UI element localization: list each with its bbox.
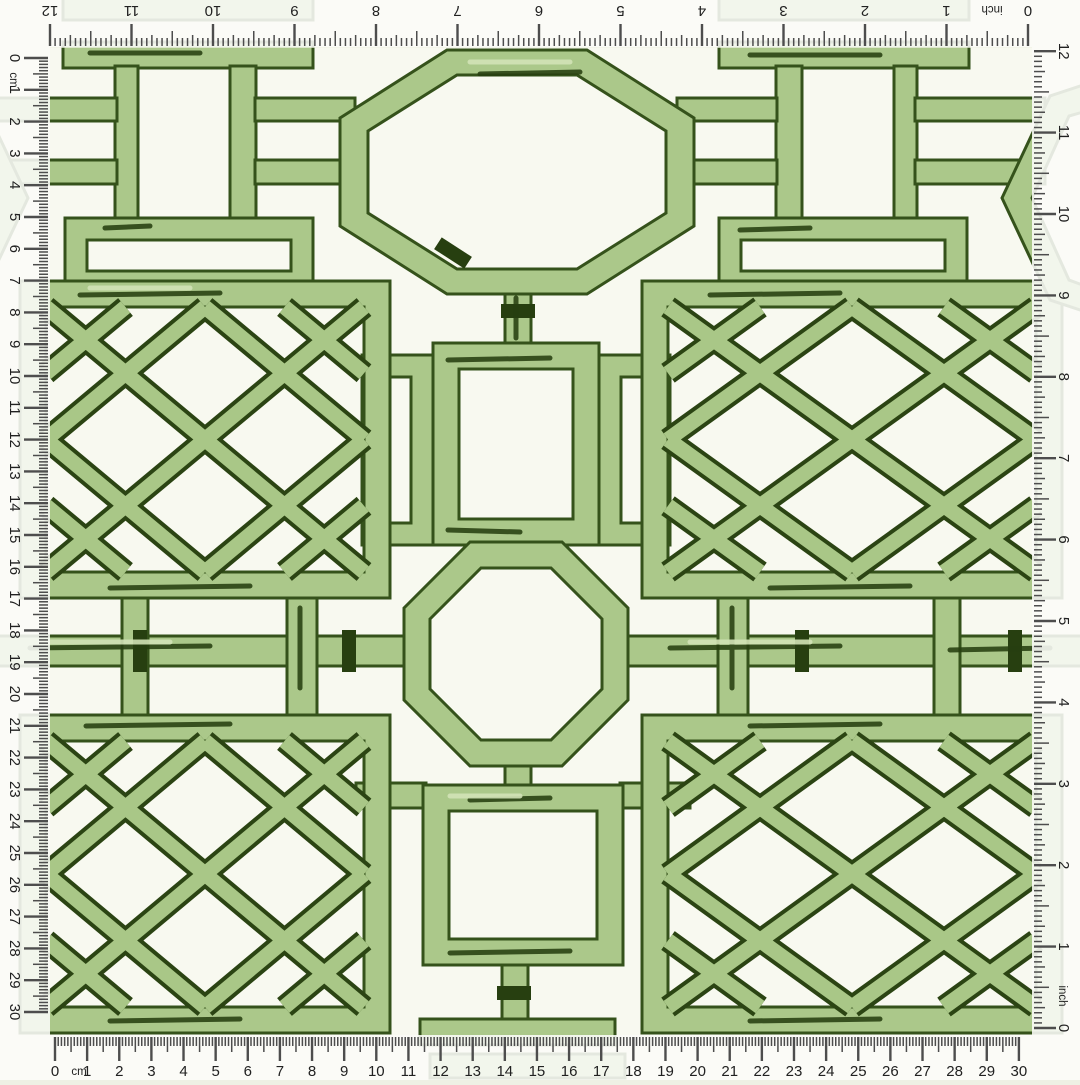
ruler-label-left-28: 28 [6, 940, 23, 957]
ruler-label-left-0: 0 [6, 54, 23, 62]
ruler-label-right-4: 4 [1055, 698, 1072, 706]
ruler-label-left-20: 20 [6, 686, 23, 703]
ruler-unit-bottom: cm [71, 1066, 86, 1078]
ruler-label-left-6: 6 [6, 245, 23, 253]
ruler-label-left-3: 3 [6, 149, 23, 157]
ruler-label-left-12: 12 [6, 431, 23, 448]
ruler-label-right-6: 6 [1055, 535, 1072, 543]
ruler-label-right-7: 7 [1055, 454, 1072, 462]
ruler-label-left-15: 15 [6, 527, 23, 544]
ruler-label-bottom-14: 14 [496, 1063, 513, 1080]
ruler-label-left-23: 23 [6, 781, 23, 798]
ruler-label-bottom-9: 9 [340, 1063, 348, 1080]
ruler-label-right-0: 0 [1055, 1024, 1072, 1032]
ruler-label-bottom-26: 26 [882, 1063, 899, 1080]
ruler-label-right-2: 2 [1055, 861, 1072, 869]
ruler-label-left-30: 30 [6, 1004, 23, 1021]
ruler-label-right-12: 12 [1055, 43, 1072, 60]
ruler-label-left-10: 10 [6, 368, 23, 385]
ruler-label-left-25: 25 [6, 845, 23, 862]
ruler-label-right-1: 1 [1055, 942, 1072, 950]
ruler-label-left-22: 22 [6, 749, 23, 766]
ruler-label-right-5: 5 [1055, 617, 1072, 625]
ruler-label-top-10: 10 [205, 2, 222, 19]
ruler-label-right-8: 8 [1055, 373, 1072, 381]
ruler-label-left-19: 19 [6, 654, 23, 671]
ruler-label-bottom-11: 11 [401, 1063, 417, 1080]
ruler-label-left-7: 7 [6, 276, 23, 284]
ruler-label-bottom-15: 15 [529, 1063, 546, 1080]
ruler-label-bottom-17: 17 [593, 1063, 610, 1080]
ruler-label-top-8: 8 [372, 2, 380, 19]
ruler-label-left-24: 24 [6, 813, 23, 830]
ruler-label-left-5: 5 [6, 213, 23, 221]
ruler-label-left-16: 16 [6, 558, 23, 575]
ruler-label-bottom-3: 3 [147, 1063, 155, 1080]
ruler-label-top-6: 6 [535, 2, 543, 19]
ruler-label-left-27: 27 [6, 908, 23, 925]
ruler-label-top-4: 4 [698, 2, 706, 19]
ruler-label-bottom-12: 12 [432, 1063, 449, 1080]
ruler-label-bottom-0: 0 [51, 1063, 59, 1080]
ruler-label-bottom-5: 5 [211, 1063, 219, 1080]
ruler-label-right-3: 3 [1055, 780, 1072, 788]
ruler-label-left-4: 4 [6, 181, 23, 189]
ruler-label-left-14: 14 [6, 495, 23, 512]
ruler-label-top-5: 5 [616, 2, 624, 19]
ruler-label-bottom-23: 23 [786, 1063, 803, 1080]
ruler-unit-left: cm [7, 72, 19, 87]
ruler-label-left-18: 18 [6, 622, 23, 639]
ruler-label-top-2: 2 [861, 2, 869, 19]
ruler-label-right-9: 9 [1055, 291, 1072, 299]
ruler-label-top-12: 12 [42, 2, 59, 19]
ruler-label-right-11: 11 [1055, 125, 1072, 141]
ruler-label-bottom-7: 7 [276, 1063, 284, 1080]
ruler-label-left-29: 29 [6, 972, 23, 989]
ruler-label-bottom-29: 29 [978, 1063, 995, 1080]
ruler-label-bottom-22: 22 [754, 1063, 771, 1080]
ruler-label-bottom-18: 18 [625, 1063, 642, 1080]
ruler-label-bottom-19: 19 [657, 1063, 674, 1080]
ruler-label-bottom-27: 27 [914, 1063, 931, 1080]
ruler-label-bottom-10: 10 [368, 1063, 385, 1080]
ruler-label-bottom-2: 2 [115, 1063, 123, 1080]
ruler-label-left-26: 26 [6, 876, 23, 893]
ruler-label-left-17: 17 [6, 590, 23, 607]
ruler-label-bottom-13: 13 [464, 1063, 481, 1080]
pattern-swatch-preview: 0123456789101112inch 0123456789101112131… [0, 0, 1080, 1080]
ruler-label-left-11: 11 [6, 400, 23, 416]
ruler-label-left-2: 2 [6, 117, 23, 125]
ruler-label-top-9: 9 [290, 2, 298, 19]
ruler-label-bottom-21: 21 [721, 1063, 738, 1080]
ruler-label-bottom-16: 16 [561, 1063, 578, 1080]
bamboo-trellis-swatch-scene: 0123456789101112inch 0123456789101112131… [0, 0, 1080, 1080]
ruler-label-top-3: 3 [779, 2, 787, 19]
ruler-label-bottom-4: 4 [179, 1063, 187, 1080]
ruler-label-bottom-25: 25 [850, 1063, 867, 1080]
ruler-label-top-7: 7 [453, 2, 461, 19]
ruler-label-bottom-8: 8 [308, 1063, 316, 1080]
ruler-label-top-11: 11 [124, 2, 140, 19]
ruler-unit-top: inch [981, 3, 1002, 15]
ruler-label-bottom-24: 24 [818, 1063, 835, 1080]
ruler-label-left-21: 21 [6, 717, 23, 734]
ruler-label-bottom-28: 28 [946, 1063, 963, 1080]
ruler-label-top-0: 0 [1024, 2, 1032, 19]
ruler-label-left-8: 8 [6, 308, 23, 316]
ruler-label-bottom-20: 20 [689, 1063, 706, 1080]
pattern-swatch [0, 0, 1080, 1078]
ruler-label-bottom-6: 6 [244, 1063, 252, 1080]
ruler-label-top-1: 1 [942, 2, 950, 19]
ruler-label-right-10: 10 [1055, 206, 1072, 223]
ruler-unit-right: inch [1056, 985, 1068, 1006]
ruler-label-left-13: 13 [6, 463, 23, 480]
ruler-label-bottom-30: 30 [1011, 1063, 1028, 1080]
ruler-label-left-9: 9 [6, 340, 23, 348]
